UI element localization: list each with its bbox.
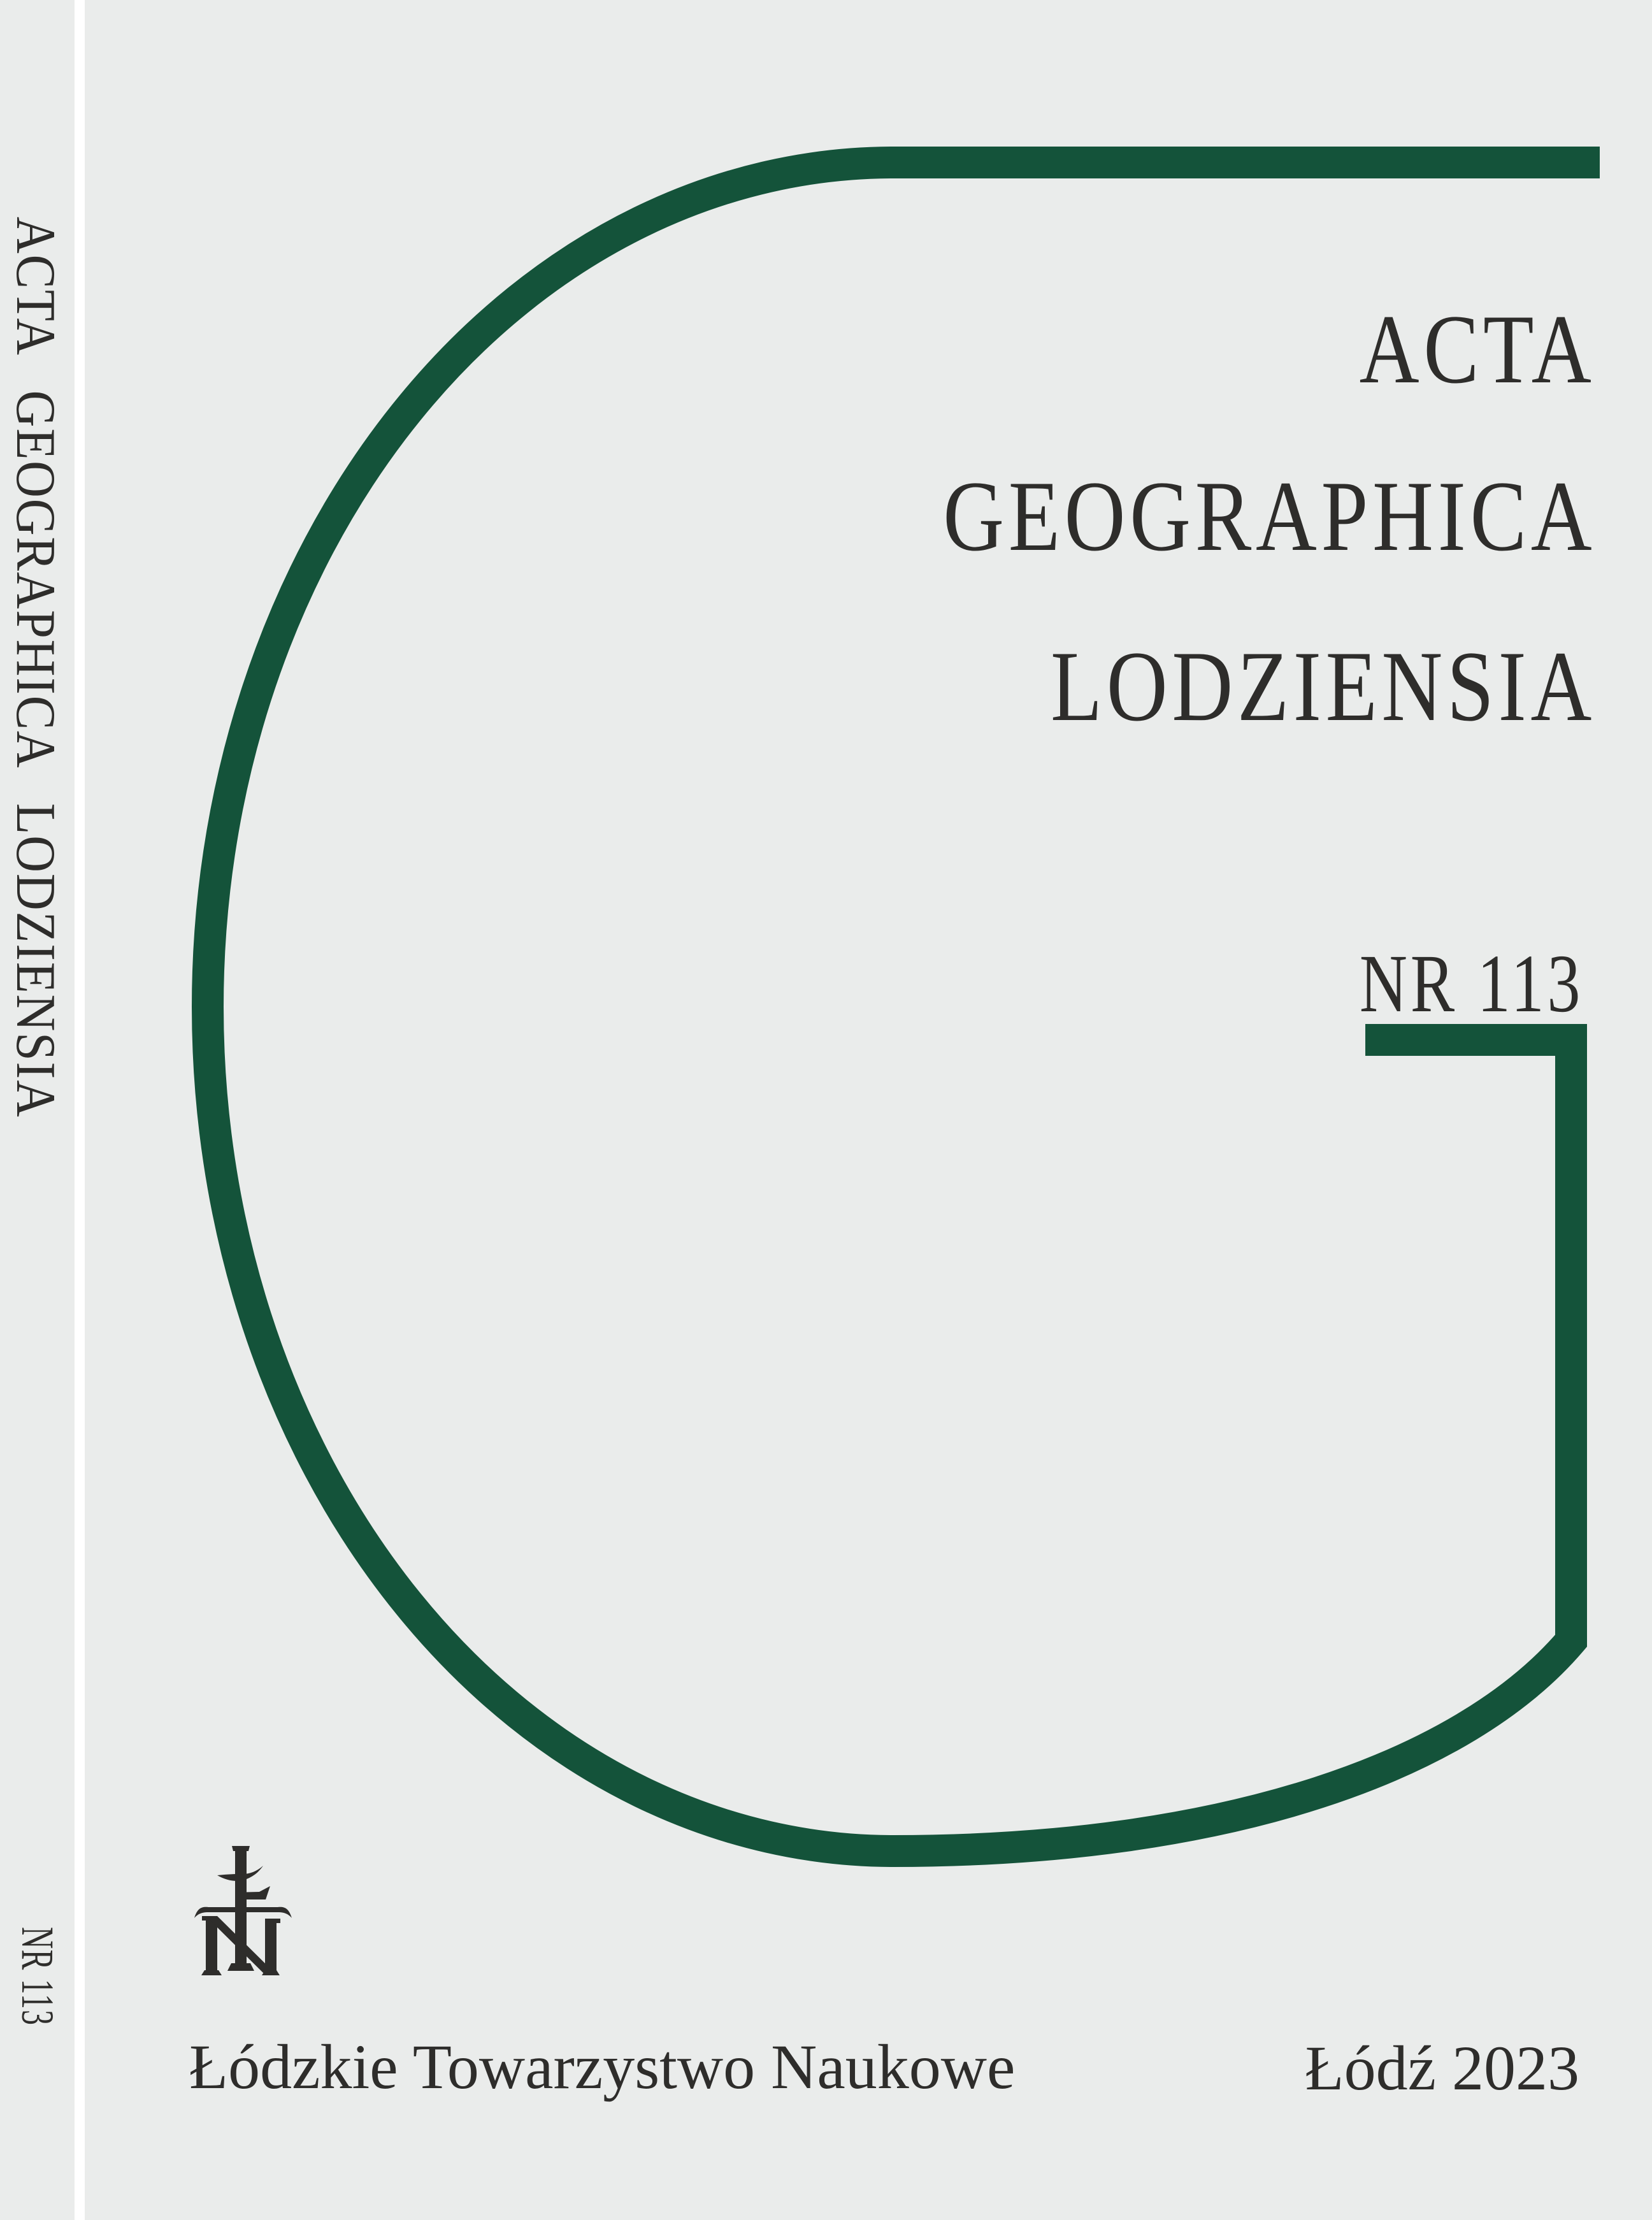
cover-title-line-3: LODZIENSIA: [1051, 637, 1596, 737]
spine-cover-divider: [75, 0, 85, 2220]
cover-title-line-1: ACTA: [1360, 300, 1596, 399]
cover-issue-number: NR 113: [1360, 942, 1583, 1025]
book-spine: ACTA GEOGRAPHICA LODZIENSIA NR 113: [0, 0, 75, 2220]
journal-cover: { "colors": { "green": "#14533A", "ink":…: [0, 0, 1652, 2220]
cover-title-line-2: GEOGRAPHICA: [943, 466, 1596, 567]
ltn-monogram-logo-icon: [193, 1846, 293, 1975]
spine-title: ACTA GEOGRAPHICA LODZIENSIA: [1, 217, 69, 1118]
publisher-name: Łódzkie Towarzystwo Naukowe: [189, 2035, 1015, 2099]
place-and-year: Łódź 2023: [1305, 2036, 1579, 2100]
spine-issue-number: NR 113: [15, 1927, 61, 2026]
